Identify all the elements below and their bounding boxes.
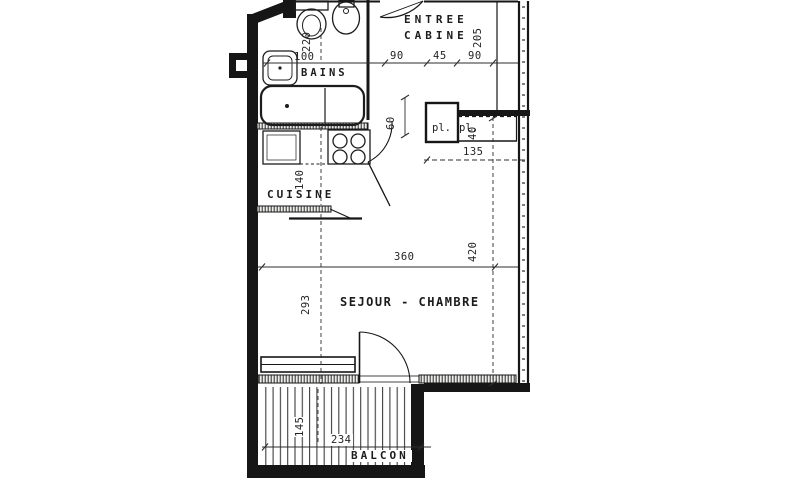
dim-cuisine-depth: 140 (294, 170, 306, 190)
room-label-bains: BAINS (301, 67, 348, 79)
wall-left (247, 14, 258, 478)
floorplan-linework (0, 0, 800, 480)
room-label-entree-line2: CABINE (404, 30, 468, 42)
room-label-entree-line1: ENTREE (404, 14, 468, 26)
room-label-cuisine: CUISINE (267, 189, 334, 201)
dim-closet-width: 135 (463, 146, 483, 158)
stove (328, 130, 370, 164)
balcony-wall-bottom (247, 465, 425, 478)
dim-entree-seg3: 90 (468, 50, 482, 62)
fixtures (261, 0, 370, 164)
dim-balcon-width: 234 (329, 434, 353, 446)
room-label-sejour-chambre: SEJOUR - CHAMBRE (340, 296, 480, 308)
sliding-partition-link (330, 209, 350, 218)
kitchen-sink (263, 131, 300, 164)
floorplan-canvas: ENTREE CABINE BAINS CUISINE SEJOUR - CHA… (0, 0, 800, 480)
room-label-balcon: BALCON (348, 450, 412, 462)
sejour-window (261, 357, 355, 372)
dim-entree-seg1: 90 (390, 50, 404, 62)
washbasin-drain (278, 66, 281, 69)
dim-entree-seg2: 45 (433, 50, 447, 62)
bathtub-drain (285, 104, 289, 108)
closet-label-left: pl. (432, 122, 451, 134)
window-sill-right (419, 375, 516, 383)
balcony-door-arc (360, 332, 411, 383)
bathtub (261, 86, 364, 125)
dim-closet-depth: 60 (385, 116, 397, 130)
dim-bains-width: 100 (294, 51, 314, 63)
dim-sejour-width: 360 (394, 251, 414, 263)
dim-entree-depth: 205 (472, 28, 484, 48)
divider-cuisine-sejour (257, 206, 331, 212)
dim-balcon-depth: 145 (294, 417, 306, 437)
wall-top-left-connector (247, 2, 283, 27)
wall-bottom-right (424, 383, 530, 392)
dim-sejour-left-depth: 293 (300, 295, 312, 315)
bains-door-leaf (368, 162, 390, 206)
stove-burner-2 (351, 134, 365, 148)
balcony-wall-right (411, 384, 424, 478)
bidet-tap (344, 9, 349, 14)
dim-sejour-depth: 420 (467, 242, 479, 262)
dim-wc-width: 220 (301, 32, 313, 52)
wall-step-bottom (229, 71, 254, 78)
dim-closet-right-depth: 40 (467, 126, 479, 140)
kitchen-sink-inner (267, 135, 296, 160)
wall-top-stub (283, 0, 296, 18)
window-sill-left (258, 375, 359, 383)
stove-burner-1 (333, 134, 347, 148)
stove-burner-4 (351, 150, 365, 164)
stove-burner-3 (333, 150, 347, 164)
